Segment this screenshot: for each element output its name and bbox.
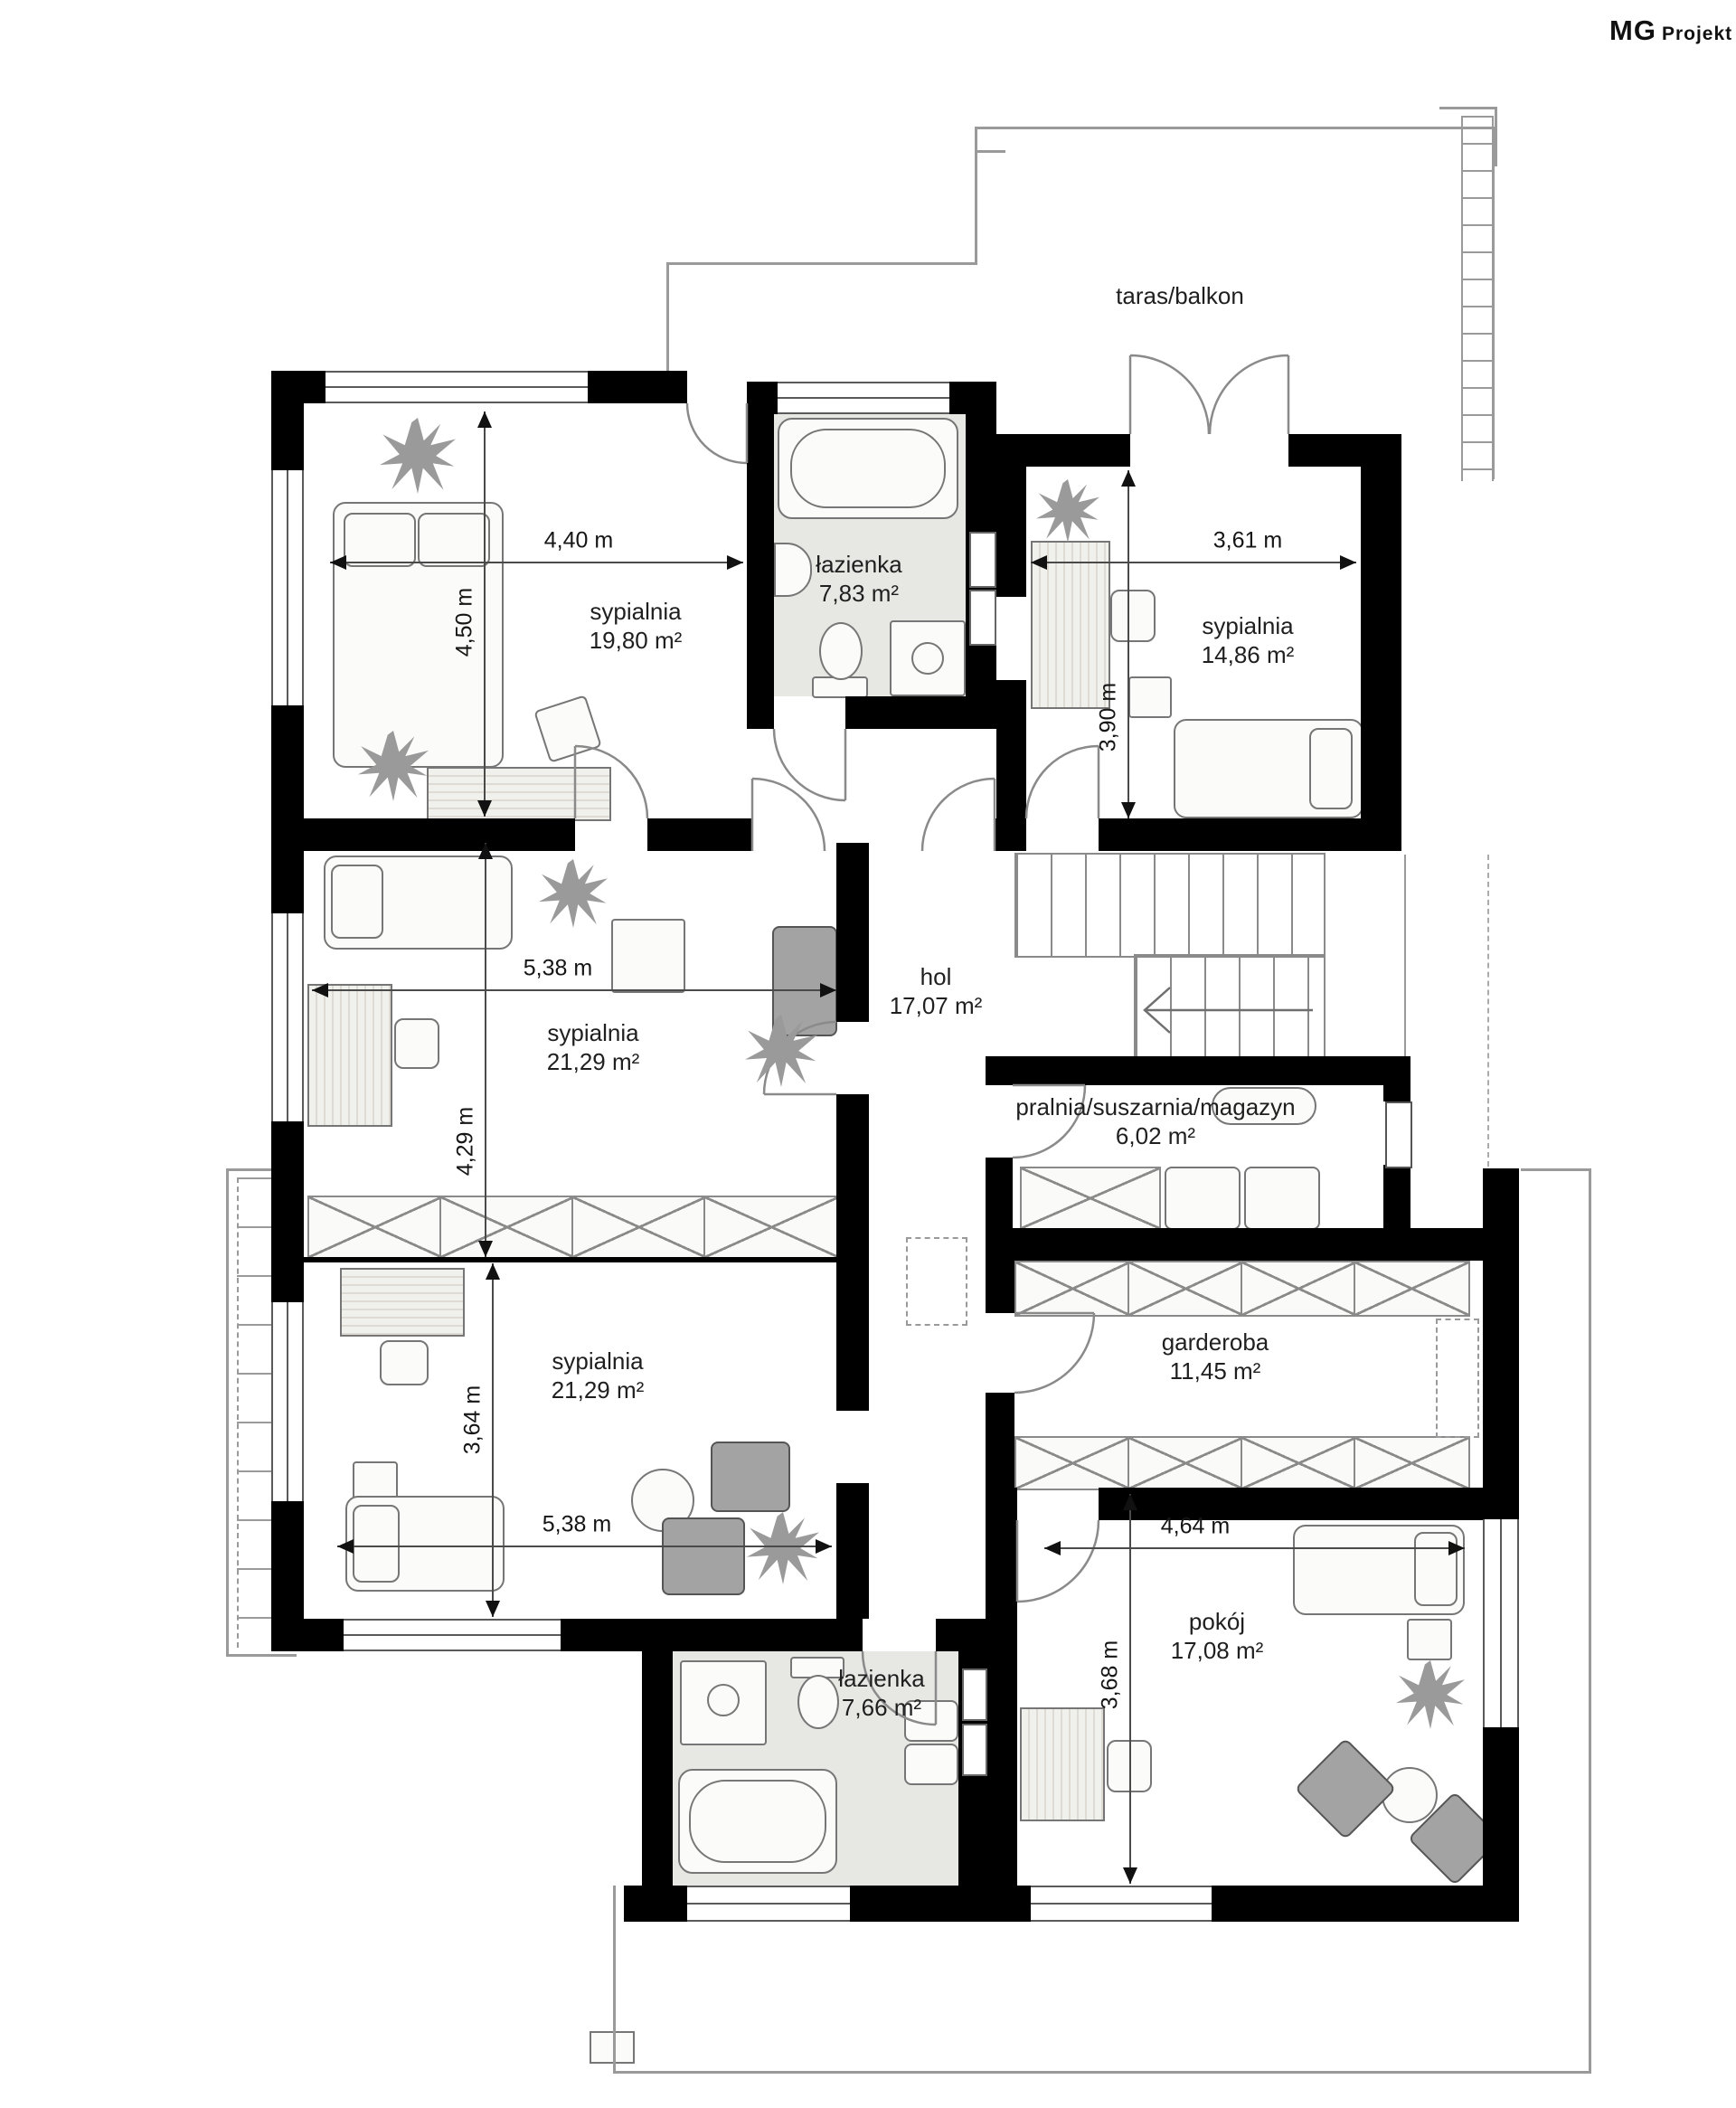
room-label-hol: hol 17,07 m² — [890, 962, 983, 1020]
logo-mg: MG — [1609, 14, 1656, 47]
dimension-label: 4,64 m — [1161, 1514, 1230, 1540]
room-area: 19,80 m² — [590, 626, 683, 655]
terrace-railing-bracket — [1495, 107, 1497, 166]
wall-segment — [1383, 1165, 1410, 1228]
hanging-rail-dashed — [1436, 1319, 1479, 1438]
nightstand — [1407, 1619, 1452, 1660]
wall-segment — [304, 818, 575, 851]
terrace-edge — [1492, 127, 1495, 479]
plant-icon — [1036, 479, 1099, 543]
door-arc — [774, 729, 845, 800]
wall-segment — [986, 1520, 1017, 1886]
dimension-arrow — [486, 1601, 500, 1617]
wall-segment — [304, 1257, 836, 1262]
wall-segment — [1361, 434, 1401, 851]
dimension-line — [1044, 1547, 1465, 1549]
dimension-arrow — [820, 983, 836, 997]
room-label-pralnia: pralnia/suszarnia/magazyn 6,02 m² — [1015, 1092, 1295, 1150]
dimension-label: 5,38 m — [542, 1512, 611, 1538]
wardrobe — [1127, 1436, 1244, 1490]
room-label-sypialnia-2: sypialnia 14,86 m² — [1202, 611, 1295, 669]
wall-segment — [642, 1651, 673, 1886]
window — [1483, 1519, 1519, 1727]
chair — [1110, 590, 1156, 642]
desk — [1020, 1707, 1105, 1821]
window — [271, 1302, 304, 1501]
terrace-edge — [666, 262, 977, 265]
wall-segment — [995, 818, 1026, 851]
dimension-arrow — [486, 1263, 500, 1280]
balcony-edge — [226, 1168, 229, 1657]
dimension-arrow — [337, 1539, 354, 1554]
armchair — [662, 1517, 745, 1595]
room-area: 21,29 m² — [547, 1047, 640, 1076]
wardrobe — [1014, 1436, 1131, 1490]
room-name: łazienka — [816, 550, 901, 579]
terrace-balustrade — [1461, 116, 1494, 481]
dimension-line — [1031, 562, 1356, 563]
wall-segment — [1483, 1727, 1519, 1886]
desk — [427, 767, 611, 821]
dimension-line — [484, 411, 486, 817]
wall-segment — [836, 1094, 869, 1261]
room-area: 7,66 m² — [838, 1693, 924, 1722]
room-label-pokoj: pokój 17,08 m² — [1171, 1607, 1264, 1665]
window — [687, 1886, 850, 1922]
room-label-taras: taras/balkon — [1116, 281, 1244, 310]
wall-segment — [986, 1228, 1519, 1261]
hall-cabinet-dashed — [906, 1237, 967, 1326]
room-name: pokój — [1171, 1607, 1264, 1636]
plant-icon — [747, 1512, 819, 1584]
wall-segment — [986, 1056, 1383, 1085]
shower-drain — [911, 642, 944, 675]
sink — [904, 1744, 958, 1785]
dimension-line — [485, 843, 486, 1257]
window — [1031, 1886, 1212, 1922]
room-name: sypialnia — [1202, 611, 1295, 640]
toilet-bowl — [819, 622, 863, 680]
dimension-label: 4,50 m — [452, 588, 478, 657]
wardrobe — [1014, 1261, 1131, 1317]
room-area: 17,08 m² — [1171, 1636, 1264, 1665]
wardrobe — [1127, 1261, 1244, 1317]
desk — [340, 1268, 465, 1337]
dimension-line — [330, 562, 743, 563]
pillow — [418, 513, 490, 567]
wall-segment — [836, 843, 869, 1022]
wardrobe — [1020, 1167, 1161, 1230]
dimension-arrow — [727, 555, 743, 570]
room-label-garderoba: garderoba 11,45 m² — [1162, 1328, 1269, 1385]
door-arc — [687, 403, 747, 463]
dimension-label: 3,61 m — [1213, 528, 1282, 554]
terrace-edge — [666, 262, 669, 373]
wardrobe — [1241, 1261, 1357, 1317]
dimension-arrow — [1044, 1541, 1061, 1555]
chair — [533, 695, 602, 763]
stairs-upper-flight — [1014, 853, 1326, 958]
nightstand — [1128, 676, 1172, 718]
floor-plan-canvas: MG Projekt — [0, 0, 1736, 2108]
room-name: taras/balkon — [1116, 281, 1244, 310]
room-label-sypialnia-4: sypialnia 21,29 m² — [552, 1347, 645, 1404]
terrace-edge — [613, 1886, 616, 2074]
stairs-lower-flight — [1134, 954, 1326, 1059]
wardrobe — [1354, 1436, 1470, 1490]
wall-segment — [647, 818, 752, 851]
wall-segment — [996, 680, 1026, 818]
dimension-arrow — [1340, 555, 1356, 570]
logo-projekt: Projekt — [1662, 24, 1732, 45]
wardrobe — [307, 1196, 443, 1259]
dimension-arrow — [1121, 802, 1136, 818]
terrace-edge — [1521, 1168, 1591, 1171]
radiator — [969, 590, 996, 646]
radiator — [962, 1668, 987, 1721]
dimension-label: 4,29 m — [453, 1107, 479, 1176]
room-name: sypialnia — [590, 597, 683, 626]
wall-segment — [986, 1158, 1013, 1230]
dimension-label: 3,90 m — [1096, 683, 1122, 752]
wall-segment — [836, 1261, 869, 1411]
room-area: 6,02 m² — [1015, 1121, 1295, 1150]
terrace-edge — [613, 2071, 1591, 2074]
terrace-railing-bracket — [1439, 107, 1497, 109]
wardrobe — [439, 1196, 575, 1259]
room-name: pralnia/suszarnia/magazyn — [1015, 1092, 1295, 1121]
wall-segment — [747, 696, 774, 729]
room-area: 7,83 m² — [816, 579, 901, 608]
dimension-arrow — [312, 983, 328, 997]
dimension-line — [492, 1263, 494, 1617]
dimension-label: 3,68 m — [1098, 1640, 1124, 1709]
window — [778, 382, 949, 414]
wardrobe — [571, 1196, 707, 1259]
terrace-edge — [975, 127, 1494, 129]
dimension-line — [1129, 1494, 1131, 1884]
wall-segment — [836, 1483, 869, 1619]
wardrobe — [1354, 1261, 1470, 1317]
window — [271, 470, 304, 705]
armchair — [711, 1442, 790, 1512]
door-arc — [1210, 355, 1288, 434]
armchair — [1294, 1737, 1396, 1839]
room-name: hol — [890, 962, 983, 991]
room-area: 21,29 m² — [552, 1375, 645, 1404]
exterior-step — [590, 2031, 635, 2064]
chair — [380, 1340, 429, 1385]
door-arc — [1026, 746, 1099, 818]
wardrobe — [703, 1196, 840, 1259]
window — [325, 371, 588, 403]
radiator — [962, 1724, 987, 1776]
toilet-bowl — [797, 1675, 839, 1729]
room-label-sypialnia-3: sypialnia 21,29 m² — [547, 1018, 640, 1076]
desk — [307, 984, 392, 1127]
chair — [394, 1018, 439, 1069]
dryer — [1244, 1167, 1320, 1230]
bathtub-basin — [689, 1780, 826, 1863]
door-arc — [1014, 1313, 1094, 1393]
wall-segment — [996, 434, 1026, 597]
room-name: garderoba — [1162, 1328, 1269, 1356]
room-area: 17,07 m² — [890, 991, 983, 1020]
wall-segment — [986, 1261, 1014, 1313]
roof-edge-dashed — [1487, 855, 1489, 1167]
plant-icon — [539, 859, 608, 928]
dimension-arrow — [477, 800, 492, 817]
door-arc — [752, 779, 825, 851]
terrace-railing-bracket — [975, 150, 1005, 153]
plant-icon — [380, 418, 456, 494]
dimension-arrow — [330, 555, 346, 570]
dimension-arrow — [478, 1241, 493, 1257]
dimension-arrow — [1031, 555, 1047, 570]
dimension-arrow — [1123, 1867, 1137, 1884]
balcony-edge — [226, 1654, 297, 1657]
dimension-line — [1127, 470, 1129, 818]
door-arc — [1017, 1520, 1099, 1602]
wall-segment — [986, 1393, 1014, 1488]
dimension-label: 3,64 m — [460, 1385, 486, 1454]
window — [344, 1619, 561, 1651]
wall-segment — [1099, 818, 1401, 851]
room-name: sypialnia — [552, 1347, 645, 1375]
dimension-label: 4,40 m — [544, 528, 613, 554]
bathtub-basin — [790, 429, 946, 508]
wall-segment — [747, 403, 774, 696]
pillow — [353, 1505, 400, 1583]
shower-drain — [707, 1684, 740, 1716]
exterior-door-leaf — [1385, 1101, 1412, 1168]
dimension-arrow — [1123, 1494, 1137, 1510]
pillow — [1309, 728, 1353, 809]
dimension-arrow — [1448, 1541, 1465, 1555]
wardrobe — [1241, 1436, 1357, 1490]
sofa — [772, 926, 837, 1036]
door-arc — [922, 779, 995, 851]
door-arc — [1130, 355, 1209, 434]
washing-machine — [1165, 1167, 1241, 1230]
wall-segment — [1383, 1056, 1410, 1101]
dimension-label: 5,38 m — [524, 956, 592, 982]
room-label-sypialnia-1: sypialnia 19,80 m² — [590, 597, 683, 655]
dimension-line — [312, 989, 836, 991]
room-name: sypialnia — [547, 1018, 640, 1047]
terrace-edge — [1589, 1168, 1591, 2074]
room-label-lazienka-dolna: łazienka 7,66 m² — [838, 1664, 924, 1722]
room-name: łazienka — [838, 1664, 924, 1693]
pillow — [331, 865, 383, 939]
logo: MG Projekt — [1609, 14, 1732, 47]
radiator — [969, 532, 996, 588]
wall-segment — [1483, 1168, 1519, 1519]
room-area: 14,86 m² — [1202, 640, 1295, 669]
room-label-lazienka-gorna: łazienka 7,83 m² — [816, 550, 901, 608]
plant-icon — [1396, 1660, 1465, 1729]
pillow — [344, 513, 416, 567]
table — [611, 919, 685, 993]
dimension-arrow — [1121, 470, 1136, 487]
dimension-arrow — [478, 843, 493, 859]
dimension-line — [337, 1546, 832, 1547]
terrace-edge — [975, 127, 977, 264]
wall-segment — [986, 1488, 1017, 1520]
dimension-arrow — [816, 1539, 832, 1554]
dimension-arrow — [477, 411, 492, 428]
room-area: 11,45 m² — [1162, 1356, 1269, 1385]
window — [271, 913, 304, 1121]
